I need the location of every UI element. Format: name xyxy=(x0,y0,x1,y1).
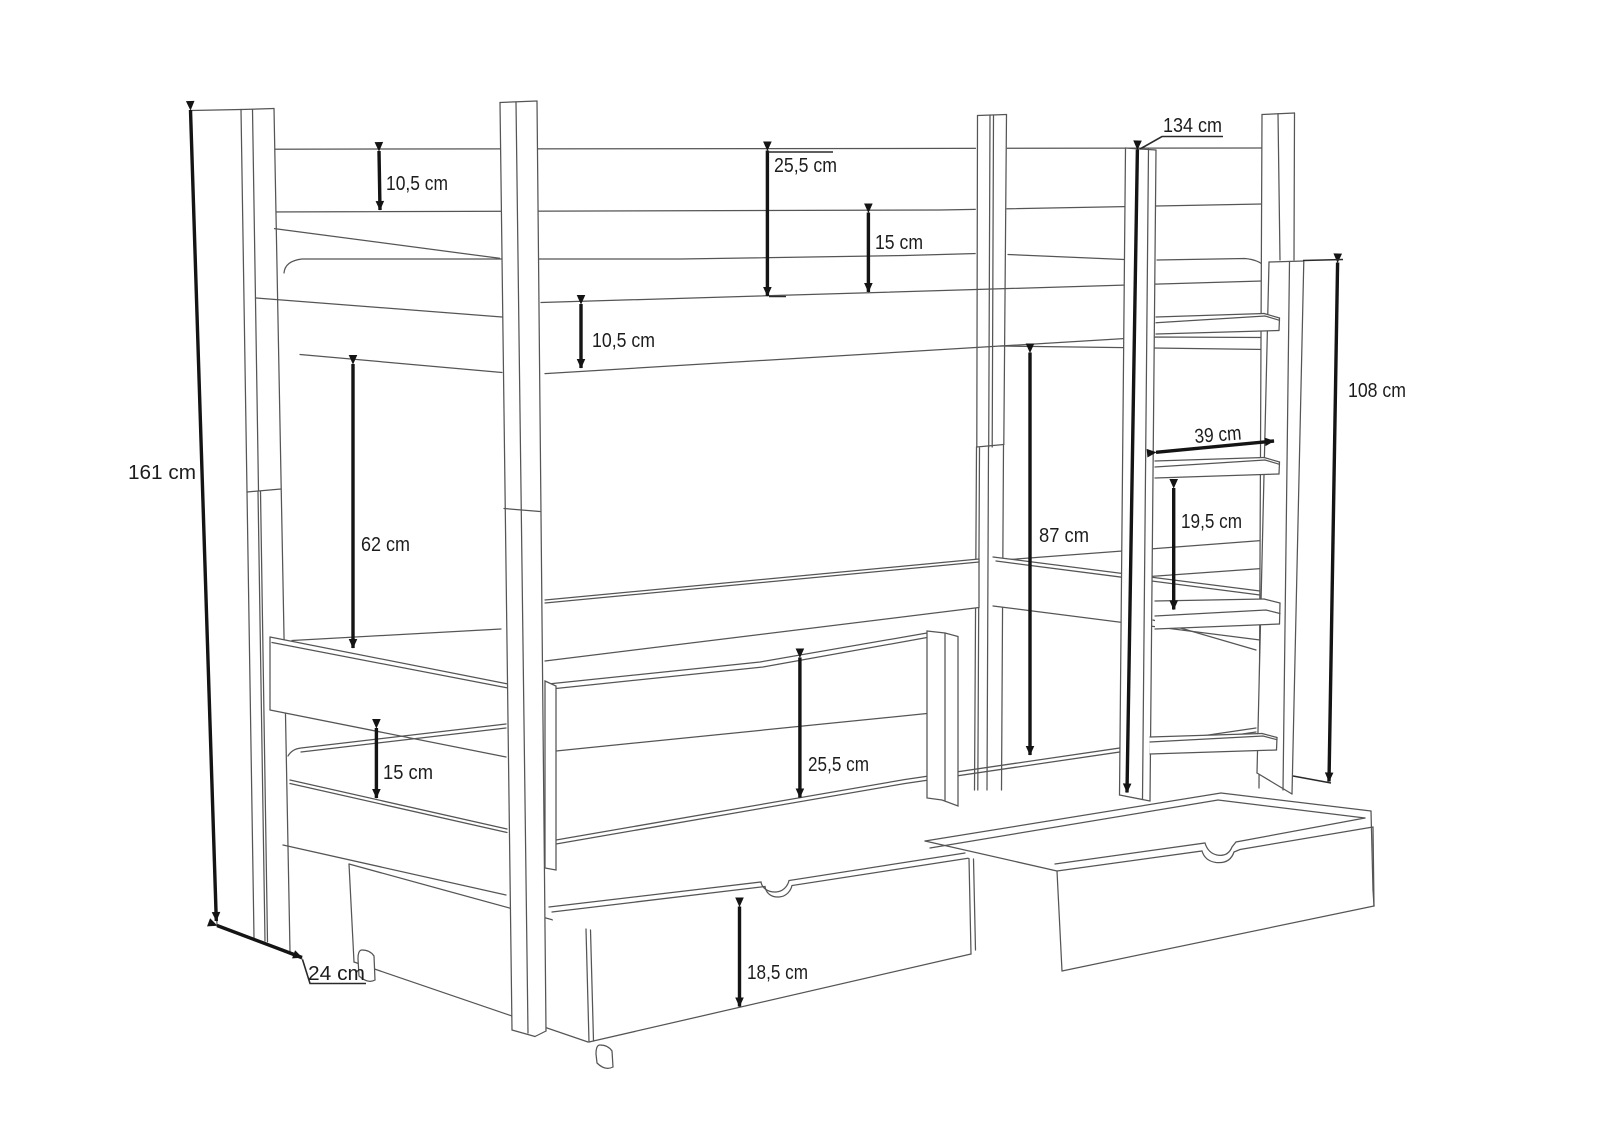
svg-text:19,5 cm: 19,5 cm xyxy=(1181,511,1242,533)
svg-text:15 cm: 15 cm xyxy=(875,232,923,254)
svg-text:39 cm: 39 cm xyxy=(1194,422,1243,448)
svg-text:25,5 cm: 25,5 cm xyxy=(808,754,869,776)
svg-text:25,5 cm: 25,5 cm xyxy=(774,155,837,177)
svg-text:62 cm: 62 cm xyxy=(361,534,410,556)
svg-text:87 cm: 87 cm xyxy=(1039,525,1089,547)
svg-text:10,5 cm: 10,5 cm xyxy=(592,330,655,352)
svg-text:10,5 cm: 10,5 cm xyxy=(386,173,448,195)
svg-text:18,5 cm: 18,5 cm xyxy=(747,962,808,984)
svg-text:108 cm: 108 cm xyxy=(1348,380,1406,402)
svg-text:15 cm: 15 cm xyxy=(383,762,433,784)
svg-text:161 cm: 161 cm xyxy=(128,462,196,484)
svg-text:134 cm: 134 cm xyxy=(1163,115,1222,137)
svg-text:24 cm: 24 cm xyxy=(308,963,365,985)
